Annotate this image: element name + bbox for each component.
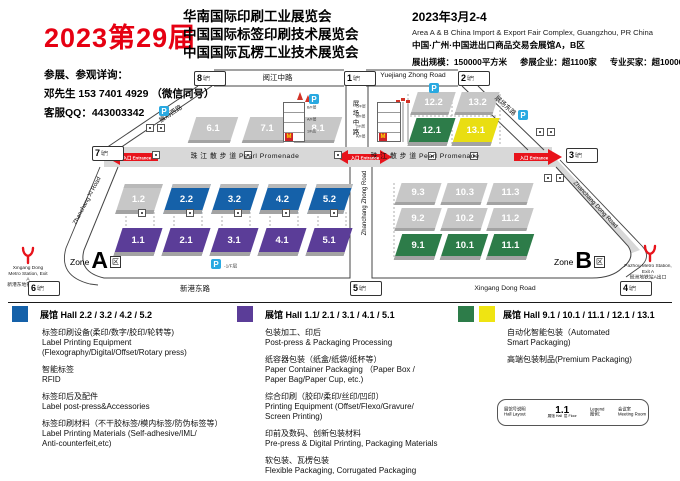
gate-2: 2Gate号门 (458, 71, 490, 86)
entrance-label-center: 入口 Entrance (347, 154, 383, 160)
hall-12-2: 12.2 (410, 92, 455, 115)
facility-icon (536, 128, 544, 136)
venue-cn: 中国·广州·中国进出口商品交易会展馆A，B区 (412, 39, 676, 51)
east-road-band (532, 150, 640, 256)
exhibition-floorplan-poster: 2023第29届 华南国际印刷工业展览会 中国国际标签印刷技术展览会 中国国际瓦… (0, 0, 680, 481)
stat-exhibitors: 参展企业：超1100家 (520, 56, 597, 68)
parking-icon: P (518, 110, 528, 120)
facility-icon (146, 124, 154, 132)
floor-label: C/F层 (356, 103, 366, 109)
metro-logo-right-icon (645, 246, 655, 261)
map-key: 展馆号说明 Hall Layout 1.1 展馆 Hall 层 Floor Le… (497, 399, 649, 426)
parking-icon: P (429, 83, 439, 93)
mcdonalds-icon: M (379, 133, 387, 141)
show-title-3: 中国国际瓦楞工业技术展览会 (183, 44, 359, 62)
meeting-room-label: 会议室 Meeting Room (618, 408, 646, 417)
parking-icon: P (211, 259, 221, 269)
show-title-1: 华南国际印刷工业展览会 (183, 8, 359, 26)
hall-11-3: 11.3 (486, 183, 533, 205)
hall-9-3: 9.3 (394, 183, 441, 205)
facility-icon (186, 209, 194, 217)
entrance-label-west: 入口 Entrance (120, 154, 153, 160)
hall-10-3: 10.3 (440, 183, 487, 205)
gate-3: 3Gate号门 (566, 148, 598, 163)
legend-column-label: 展馆 Hall 2.2 / 3.2 / 4.2 / 5.2 标签印刷设备(柔印/… (12, 306, 222, 456)
contact-block: 参展、参观详询： 邓先生 153 7401 4929 （微信同号） 客服QQ：4… (44, 66, 214, 123)
contact-heading: 参展、参观详询： (44, 66, 214, 85)
road-xingang-cn: 新港东路 (160, 283, 230, 294)
hall-12-1: 12.1 (407, 118, 455, 146)
contact-phone: 邓先生 153 7401 4929 （微信同号） (44, 85, 214, 104)
hall-11-2: 11.2 (486, 208, 533, 231)
hall-10-1: 10.1 (440, 234, 488, 260)
stat-buyers: 专业买家：超100000人 (610, 56, 680, 68)
mcdonalds-icon: M (285, 133, 293, 141)
legend-title: 展馆 Hall 9.1 / 10.1 / 11.1 / 12.1 / 13.1 (503, 308, 655, 321)
hall-3-1: 3.1 (209, 228, 258, 256)
facility-icon (234, 209, 242, 217)
stat-scale: 展出规模：150000平方米 (412, 56, 507, 68)
metro-station-right: Pazhou Metro Station, Exit A 琶洲地铁站A出口 (624, 264, 672, 281)
road-yuejiang-en: Yuejiang Zhong Road (368, 72, 458, 79)
legend-column-smart-packaging: 展馆 Hall 9.1 / 10.1 / 11.1 / 12.1 / 13.1 … (458, 306, 655, 372)
floor-label: 1/F层 (307, 128, 316, 134)
promenade-label-left: 珠 江 散 步 道 Pearl Promenade (170, 150, 320, 160)
edition-title: 2023第29届 (44, 16, 196, 55)
event-stats: 展出规模：150000平方米 参展企业：超1100家 专业买家：超100000人 (412, 56, 676, 68)
legend-title: 展馆 Hall 2.2 / 3.2 / 4.2 / 5.2 (40, 308, 152, 321)
show-title-2: 中国国际标签印刷技术展览会 (183, 26, 359, 44)
floor-label: A/F层 (307, 116, 317, 122)
gate-4: 4Gate号门 (620, 281, 652, 296)
legend-divider (8, 302, 672, 303)
floor-label: A/F层 (356, 133, 366, 139)
hall-4-1: 4.1 (257, 228, 306, 256)
facility-icon (544, 174, 552, 182)
road-yuejiang-cn: 阅江中路 (240, 72, 315, 83)
facility-icon (547, 128, 555, 136)
facility-icon (138, 209, 146, 217)
contact-qq: 客服QQ：443003342 (44, 104, 214, 123)
road-west-en: Zhanchang Xi Road (65, 162, 110, 240)
hall-number-sample: 1.1 展馆 Hall 层 Floor (538, 406, 586, 420)
facility-icon (334, 151, 342, 159)
hall-10-2: 10.2 (440, 208, 487, 231)
legend-color-green (458, 306, 474, 322)
road-xingang-en: Xingang Dong Road (460, 285, 550, 292)
metro-logo-left-icon (23, 248, 33, 263)
hall-9-2: 9.2 (394, 208, 441, 231)
hall-layout-note: 展馆号说明 Hall Layout (504, 408, 526, 417)
gate-7: 7Gate号门 (92, 146, 124, 161)
road-center-en: Zhanchang Zhong Road (362, 160, 368, 246)
gate-1: 1Gate号门 (344, 71, 376, 86)
gate-5: 5Gate号门 (350, 281, 382, 296)
floor-label: 2/F层 (356, 123, 365, 129)
road-east-en: Zhanchang Dong Road (562, 170, 628, 240)
show-titles: 华南国际印刷工业展览会 中国国际标签印刷技术展览会 中国国际瓦楞工业技术展览会 (183, 8, 359, 62)
hall-2-1: 2.1 (161, 228, 210, 256)
gate-6: 6Gate号门 (28, 281, 60, 296)
parking-icon: P (309, 94, 319, 104)
legend-column-packaging: 展馆 Hall 1.1/ 2.1 / 3.1 / 4.1 / 5.1 包装加工、… (237, 306, 438, 481)
legend-color-yellow (479, 306, 495, 322)
facility-icon (330, 209, 338, 217)
zone-b-label: Zone B 区 (554, 251, 605, 270)
event-info: 2023年3月2-4 Area A & B China Import & Exp… (412, 8, 676, 68)
zone-a-label: Zone A 区 (70, 251, 121, 270)
facility-icon (282, 209, 290, 217)
legend-color-purple (237, 306, 253, 322)
event-date: 2023年3月2-4 (412, 8, 676, 25)
parking-floor-label: -1/F层 (224, 262, 237, 269)
legend-word: Legend 图例： (590, 408, 604, 417)
floor-label: B/F层 (307, 104, 317, 110)
floor-label: B/F层 (356, 113, 366, 119)
legend-color-blue (12, 306, 28, 322)
venue-en: Area A & B China Import & Export Fair Co… (412, 28, 676, 37)
hall-13-1: 13.1 (451, 118, 499, 146)
hall-9-1: 9.1 (394, 234, 442, 260)
entrance-label-east: 入口 Entrance (518, 154, 550, 160)
hall-11-1: 11.1 (486, 234, 534, 260)
hall-5-1: 5.1 (305, 228, 352, 256)
legend-title: 展馆 Hall 1.1/ 2.1 / 3.1 / 4.1 / 5.1 (265, 308, 395, 321)
